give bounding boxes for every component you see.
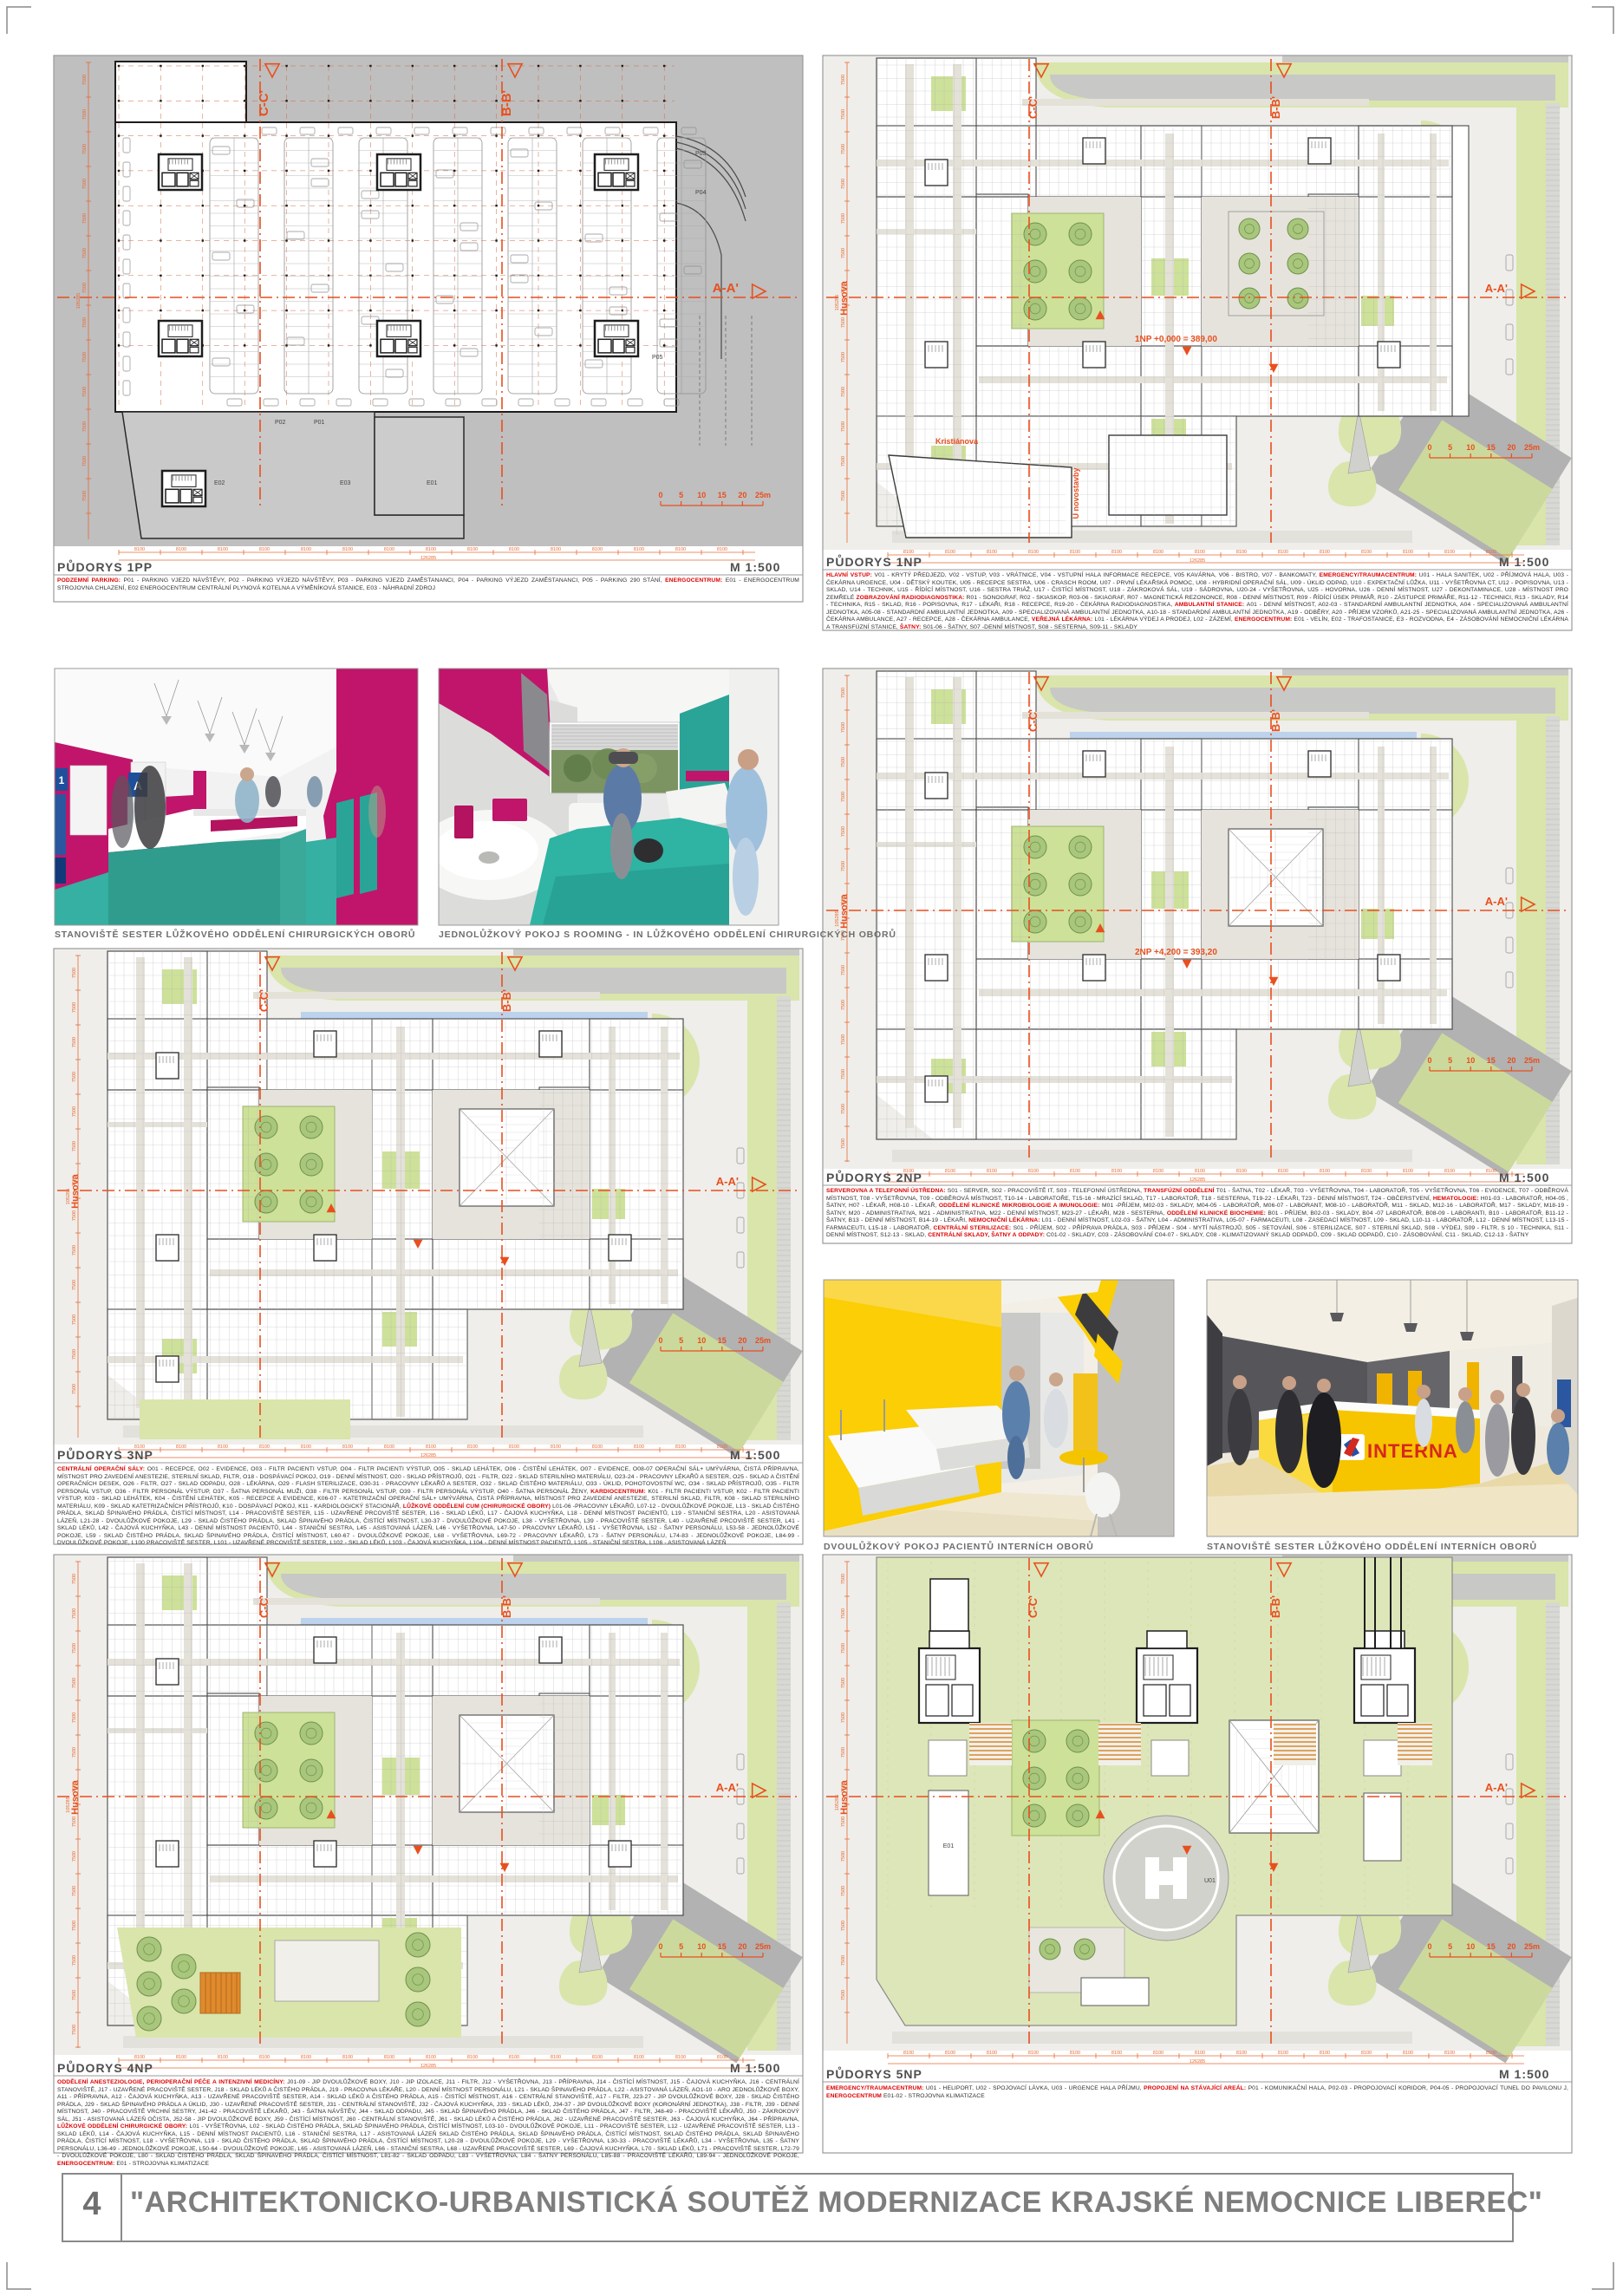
svg-text:7500: 7500 <box>841 491 846 501</box>
svg-text:7500: 7500 <box>72 968 77 978</box>
svg-text:15: 15 <box>718 491 727 499</box>
svg-text:7500: 7500 <box>82 179 88 189</box>
svg-text:8100: 8100 <box>218 1445 228 1450</box>
svg-text:8100: 8100 <box>1236 550 1247 555</box>
svg-text:7500: 7500 <box>841 1990 846 2000</box>
svg-text:8100: 8100 <box>509 547 519 552</box>
svg-text:7500: 7500 <box>72 1384 77 1394</box>
svg-text:P03: P03 <box>695 151 707 157</box>
svg-text:1: 1 <box>59 774 65 786</box>
svg-text:8100: 8100 <box>1070 1169 1080 1174</box>
svg-text:A-A': A-A' <box>1485 282 1508 295</box>
svg-text:8100: 8100 <box>1278 2051 1288 2056</box>
svg-text:8100: 8100 <box>1444 1169 1455 1174</box>
svg-text:7500: 7500 <box>72 1176 77 1186</box>
svg-text:B-B': B-B' <box>500 989 513 1012</box>
svg-text:E01: E01 <box>427 480 438 486</box>
svg-text:7500: 7500 <box>841 1851 846 1862</box>
svg-text:105285: 105285 <box>835 910 840 926</box>
svg-text:20: 20 <box>1507 443 1515 452</box>
svg-text:8100: 8100 <box>1111 550 1122 555</box>
svg-text:7500: 7500 <box>841 1574 846 1584</box>
svg-text:8100: 8100 <box>1153 2051 1163 2056</box>
svg-text:7500: 7500 <box>72 2025 77 2035</box>
svg-text:8100: 8100 <box>1195 1169 1205 1174</box>
svg-text:7500: 7500 <box>72 1643 77 1654</box>
svg-text:7500: 7500 <box>72 1280 77 1290</box>
svg-text:8100: 8100 <box>384 547 394 552</box>
svg-text:105285: 105285 <box>66 1797 71 1812</box>
svg-text:5: 5 <box>679 491 683 499</box>
svg-text:7500: 7500 <box>82 456 88 466</box>
svg-text:8100: 8100 <box>384 1445 394 1450</box>
svg-text:7500: 7500 <box>841 861 846 871</box>
svg-text:8100: 8100 <box>634 2055 644 2060</box>
svg-text:0: 0 <box>1427 1942 1431 1951</box>
svg-text:7500: 7500 <box>841 1955 846 1966</box>
svg-text:P02: P02 <box>275 420 286 426</box>
svg-text:Kristiánova: Kristiánova <box>935 437 979 446</box>
svg-text:10: 10 <box>1466 1056 1475 1065</box>
svg-text:7500: 7500 <box>841 1000 846 1010</box>
svg-text:7500: 7500 <box>841 421 846 432</box>
svg-text:105285: 105285 <box>66 1189 71 1204</box>
svg-text:0: 0 <box>1427 1056 1431 1065</box>
svg-text:8100: 8100 <box>384 2055 394 2060</box>
svg-text:7500: 7500 <box>72 1314 77 1325</box>
svg-text:P05: P05 <box>652 355 663 361</box>
svg-text:8100: 8100 <box>509 2055 519 2060</box>
svg-text:8100: 8100 <box>675 1445 686 1450</box>
svg-text:8100: 8100 <box>945 550 955 555</box>
svg-text:8100: 8100 <box>134 547 145 552</box>
svg-text:7500: 7500 <box>841 248 846 258</box>
svg-text:7500: 7500 <box>841 757 846 767</box>
svg-text:7500: 7500 <box>72 1245 77 1256</box>
svg-text:7500: 7500 <box>841 1817 846 1827</box>
svg-text:8100: 8100 <box>467 1445 478 1450</box>
svg-text:8100: 8100 <box>1403 2051 1413 2056</box>
svg-text:7500: 7500 <box>72 1072 77 1082</box>
svg-text:E02: E02 <box>214 480 225 486</box>
svg-text:7500: 7500 <box>72 1141 77 1151</box>
svg-text:B-B': B-B' <box>499 90 514 116</box>
svg-text:1NP +0,000 = 389,00: 1NP +0,000 = 389,00 <box>1135 335 1217 344</box>
svg-text:8100: 8100 <box>1278 1169 1288 1174</box>
svg-text:7500: 7500 <box>841 1608 846 1619</box>
svg-text:20: 20 <box>1507 1056 1515 1065</box>
svg-text:8100: 8100 <box>342 2055 353 2060</box>
svg-text:8100: 8100 <box>1236 2051 1247 2056</box>
svg-text:7500: 7500 <box>82 317 88 328</box>
svg-text:25m: 25m <box>755 1336 771 1345</box>
svg-text:8100: 8100 <box>1195 550 1205 555</box>
svg-text:C-C': C-C' <box>257 90 271 116</box>
svg-text:7500: 7500 <box>841 179 846 189</box>
svg-text:7500: 7500 <box>841 722 846 733</box>
svg-text:7500: 7500 <box>82 75 88 85</box>
svg-text:8100: 8100 <box>342 547 353 552</box>
svg-text:7500: 7500 <box>82 109 88 120</box>
svg-text:7500: 7500 <box>841 688 846 698</box>
svg-text:5: 5 <box>1448 1056 1452 1065</box>
svg-text:8100: 8100 <box>426 1445 436 1450</box>
svg-text:7500: 7500 <box>841 1886 846 1896</box>
svg-text:25m: 25m <box>1524 1942 1540 1951</box>
svg-text:7500: 7500 <box>82 144 88 154</box>
svg-text:25m: 25m <box>755 491 771 499</box>
svg-text:8100: 8100 <box>1403 550 1413 555</box>
svg-text:0: 0 <box>658 491 662 499</box>
svg-text:8100: 8100 <box>1070 550 1080 555</box>
svg-text:7500: 7500 <box>841 1034 846 1045</box>
svg-text:7500: 7500 <box>82 352 88 362</box>
svg-text:7500: 7500 <box>82 213 88 224</box>
svg-text:7500: 7500 <box>72 1747 77 1758</box>
svg-text:126285: 126285 <box>420 2064 436 2069</box>
svg-text:5: 5 <box>679 1942 683 1951</box>
svg-text:7500: 7500 <box>841 1712 846 1723</box>
svg-text:8100: 8100 <box>1361 2051 1372 2056</box>
svg-text:7500: 7500 <box>841 75 846 85</box>
svg-text:INTERNA: INTERNA <box>1367 1440 1458 1462</box>
svg-text:A-A': A-A' <box>716 1175 739 1188</box>
svg-text:8100: 8100 <box>1070 2051 1080 2056</box>
svg-text:8100: 8100 <box>1028 1169 1039 1174</box>
svg-text:8100: 8100 <box>945 1169 955 1174</box>
svg-text:8100: 8100 <box>1486 1169 1496 1174</box>
svg-text:7500: 7500 <box>841 1678 846 1688</box>
svg-text:8100: 8100 <box>259 547 270 552</box>
svg-text:8100: 8100 <box>1403 1169 1413 1174</box>
svg-text:7500: 7500 <box>72 1990 77 2000</box>
svg-text:10: 10 <box>1466 1942 1475 1951</box>
svg-text:7500: 7500 <box>72 1037 77 1047</box>
svg-text:20: 20 <box>738 1942 746 1951</box>
svg-text:E03: E03 <box>340 480 351 486</box>
svg-text:B-B': B-B' <box>1269 1595 1282 1618</box>
svg-text:7500: 7500 <box>72 1886 77 1896</box>
svg-text:10: 10 <box>697 1336 706 1345</box>
svg-text:A-A': A-A' <box>716 1781 739 1794</box>
svg-text:126285: 126285 <box>420 556 436 561</box>
svg-text:7500: 7500 <box>841 144 846 154</box>
svg-text:8100: 8100 <box>1320 550 1330 555</box>
svg-text:8100: 8100 <box>551 1445 561 1450</box>
svg-text:25m: 25m <box>1524 443 1540 452</box>
svg-text:8100: 8100 <box>1195 2051 1205 2056</box>
svg-text:7500: 7500 <box>841 1138 846 1149</box>
svg-text:7500: 7500 <box>841 1643 846 1654</box>
svg-text:8100: 8100 <box>592 2055 603 2060</box>
svg-text:B-B': B-B' <box>1269 96 1282 119</box>
svg-text:8100: 8100 <box>259 2055 270 2060</box>
svg-text:7500: 7500 <box>841 1782 846 1792</box>
svg-text:7500: 7500 <box>72 1608 77 1619</box>
svg-text:8100: 8100 <box>1111 2051 1122 2056</box>
svg-text:8100: 8100 <box>551 2055 561 2060</box>
svg-text:C-C': C-C' <box>1027 1595 1040 1618</box>
svg-text:8100: 8100 <box>218 547 228 552</box>
svg-text:A-A': A-A' <box>1485 1781 1508 1794</box>
svg-text:25m: 25m <box>1524 1056 1540 1065</box>
svg-text:20: 20 <box>738 491 746 499</box>
svg-text:7500: 7500 <box>72 1921 77 1931</box>
svg-text:7500: 7500 <box>72 1851 77 1862</box>
svg-text:8100: 8100 <box>1153 550 1163 555</box>
svg-text:8100: 8100 <box>426 2055 436 2060</box>
svg-text:20: 20 <box>738 1336 746 1345</box>
svg-text:8100: 8100 <box>1361 1169 1372 1174</box>
svg-text:7500: 7500 <box>841 896 846 906</box>
svg-text:C-C': C-C' <box>1027 96 1040 119</box>
svg-text:8100: 8100 <box>467 2055 478 2060</box>
svg-text:8100: 8100 <box>1486 2051 1496 2056</box>
svg-text:7500: 7500 <box>72 1712 77 1723</box>
svg-text:8100: 8100 <box>176 1445 186 1450</box>
svg-text:105285: 105285 <box>835 1795 840 1810</box>
svg-text:5: 5 <box>1448 443 1452 452</box>
svg-text:7500: 7500 <box>841 1104 846 1114</box>
svg-text:0: 0 <box>658 1336 662 1345</box>
svg-text:7500: 7500 <box>82 491 88 501</box>
svg-text:7500: 7500 <box>841 965 846 975</box>
svg-text:8100: 8100 <box>342 1445 353 1450</box>
svg-text:U novostavby: U novostavby <box>1072 467 1080 519</box>
svg-text:7500: 7500 <box>72 1210 77 1221</box>
svg-text:8100: 8100 <box>1486 550 1496 555</box>
svg-text:15: 15 <box>1487 1942 1496 1951</box>
svg-text:5: 5 <box>1448 1942 1452 1951</box>
svg-text:A-A': A-A' <box>1485 895 1508 908</box>
svg-text:C-C': C-C' <box>257 989 270 1012</box>
svg-text:7500: 7500 <box>82 421 88 432</box>
svg-text:7500: 7500 <box>72 1817 77 1827</box>
svg-text:5: 5 <box>679 1336 683 1345</box>
svg-text:7500: 7500 <box>841 352 846 362</box>
svg-text:8100: 8100 <box>467 547 478 552</box>
svg-text:7500: 7500 <box>72 1002 77 1013</box>
svg-text:8100: 8100 <box>134 2055 145 2060</box>
svg-text:7500: 7500 <box>72 1955 77 1966</box>
svg-text:7500: 7500 <box>841 826 846 837</box>
svg-text:8100: 8100 <box>551 547 561 552</box>
svg-text:8100: 8100 <box>218 2055 228 2060</box>
svg-text:7500: 7500 <box>841 792 846 802</box>
svg-text:P04: P04 <box>695 190 707 196</box>
svg-text:7500: 7500 <box>72 1574 77 1584</box>
svg-text:8100: 8100 <box>1028 2051 1039 2056</box>
svg-text:7500: 7500 <box>82 387 88 397</box>
svg-text:15: 15 <box>718 1336 727 1345</box>
svg-text:8100: 8100 <box>176 547 186 552</box>
svg-text:7500: 7500 <box>841 109 846 120</box>
svg-text:126285: 126285 <box>1190 1177 1205 1183</box>
svg-text:126285: 126285 <box>1190 2059 1205 2064</box>
svg-text:7500: 7500 <box>841 1747 846 1758</box>
svg-text:8100: 8100 <box>509 1445 519 1450</box>
svg-text:0: 0 <box>1427 443 1431 452</box>
svg-text:8100: 8100 <box>592 1445 603 1450</box>
svg-text:8100: 8100 <box>717 547 727 552</box>
svg-text:8100: 8100 <box>301 547 311 552</box>
svg-text:A-A': A-A' <box>713 281 739 296</box>
svg-text:105285: 105285 <box>835 295 840 310</box>
svg-text:7500: 7500 <box>72 1678 77 1688</box>
svg-text:105285: 105285 <box>76 293 81 309</box>
svg-text:8100: 8100 <box>675 2055 686 2060</box>
svg-text:15: 15 <box>1487 1056 1496 1065</box>
svg-text:8100: 8100 <box>675 547 686 552</box>
svg-text:8100: 8100 <box>945 2051 955 2056</box>
svg-text:8100: 8100 <box>1236 1169 1247 1174</box>
svg-text:15: 15 <box>718 1942 727 1951</box>
svg-text:7500: 7500 <box>72 1106 77 1117</box>
svg-text:10: 10 <box>1466 443 1475 452</box>
svg-text:10: 10 <box>697 491 706 499</box>
svg-text:8100: 8100 <box>1320 1169 1330 1174</box>
svg-text:8100: 8100 <box>1111 1169 1122 1174</box>
svg-text:20: 20 <box>1507 1942 1515 1951</box>
svg-text:126285: 126285 <box>1190 558 1205 564</box>
svg-text:7500: 7500 <box>72 1782 77 1792</box>
svg-text:7500: 7500 <box>841 1069 846 1080</box>
svg-text:8100: 8100 <box>1278 550 1288 555</box>
svg-text:8100: 8100 <box>426 547 436 552</box>
svg-text:8100: 8100 <box>1444 550 1455 555</box>
svg-text:7500: 7500 <box>841 387 846 397</box>
svg-text:E01: E01 <box>943 1843 955 1849</box>
svg-text:8100: 8100 <box>301 1445 311 1450</box>
svg-text:0: 0 <box>658 1942 662 1951</box>
svg-text:8100: 8100 <box>1361 550 1372 555</box>
svg-text:8100: 8100 <box>301 2055 311 2060</box>
svg-text:2NP +4,200 = 393,20: 2NP +4,200 = 393,20 <box>1135 948 1217 957</box>
svg-text:8100: 8100 <box>634 1445 644 1450</box>
svg-text:7500: 7500 <box>841 283 846 293</box>
svg-text:7500: 7500 <box>841 456 846 466</box>
svg-text:8100: 8100 <box>1444 2051 1455 2056</box>
svg-text:7500: 7500 <box>82 283 88 293</box>
svg-text:25m: 25m <box>755 1942 771 1951</box>
svg-text:8100: 8100 <box>259 1445 270 1450</box>
svg-text:8100: 8100 <box>987 550 997 555</box>
svg-text:7500: 7500 <box>82 248 88 258</box>
svg-text:C-C': C-C' <box>1027 709 1040 732</box>
svg-text:7500: 7500 <box>72 1349 77 1360</box>
svg-text:7500: 7500 <box>841 1921 846 1931</box>
svg-text:8100: 8100 <box>903 2051 914 2056</box>
svg-text:8100: 8100 <box>1153 1169 1163 1174</box>
svg-text:8100: 8100 <box>987 2051 997 2056</box>
svg-text:8100: 8100 <box>1028 550 1039 555</box>
svg-text:8100: 8100 <box>592 547 603 552</box>
svg-text:8100: 8100 <box>717 2055 727 2060</box>
svg-text:8100: 8100 <box>176 2055 186 2060</box>
svg-text:7500: 7500 <box>841 213 846 224</box>
svg-text:B-B': B-B' <box>500 1595 513 1618</box>
svg-text:C-C': C-C' <box>257 1595 270 1618</box>
svg-text:U01: U01 <box>1204 1878 1216 1884</box>
svg-text:8100: 8100 <box>1320 2051 1330 2056</box>
svg-text:10: 10 <box>697 1942 706 1951</box>
svg-text:P01: P01 <box>314 420 325 426</box>
svg-text:B-B': B-B' <box>1269 709 1282 732</box>
svg-text:8100: 8100 <box>987 1169 997 1174</box>
svg-text:15: 15 <box>1487 443 1496 452</box>
svg-text:126285: 126285 <box>420 1453 436 1458</box>
svg-text:8100: 8100 <box>634 547 644 552</box>
svg-text:8100: 8100 <box>717 1445 727 1450</box>
svg-text:7500: 7500 <box>841 317 846 328</box>
